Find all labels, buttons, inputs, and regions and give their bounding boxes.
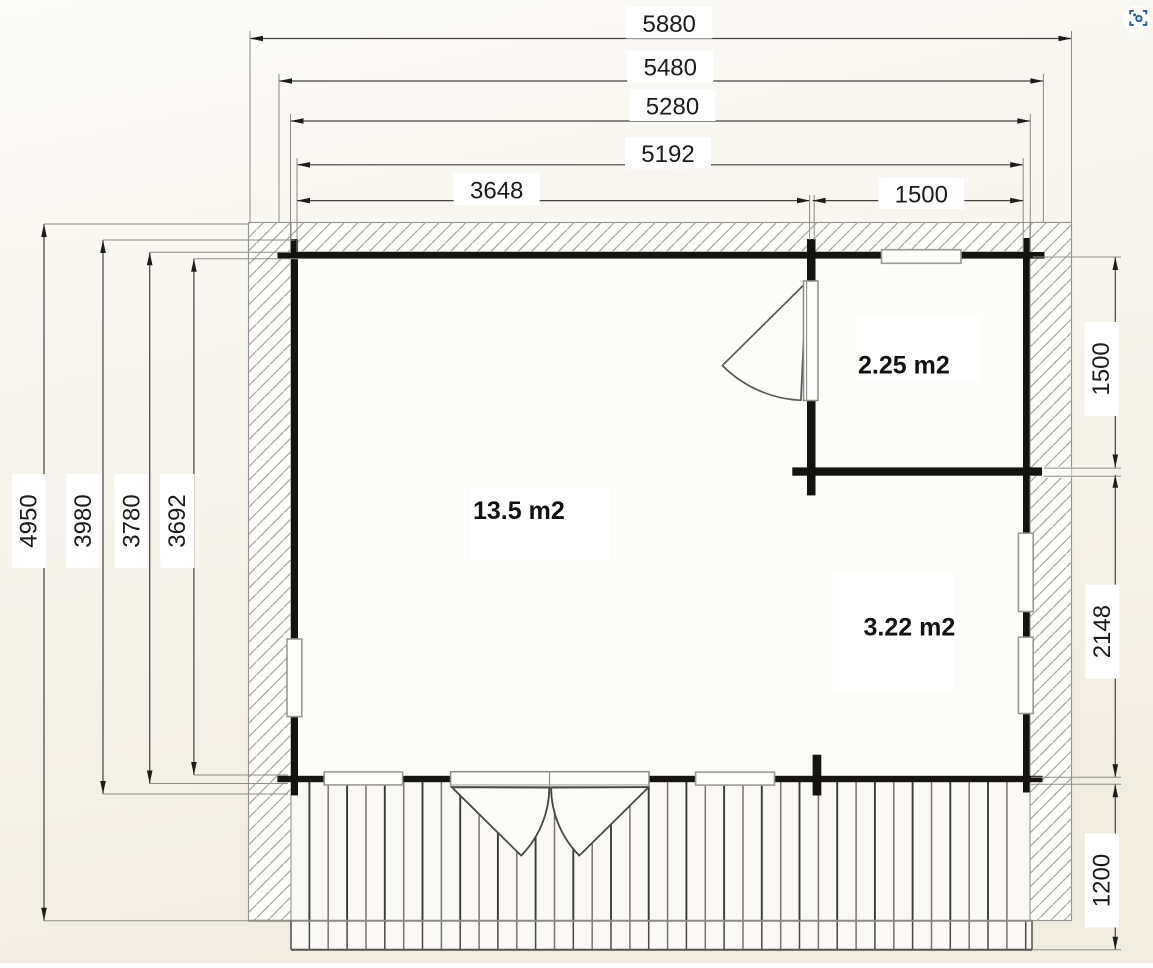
svg-text:4950: 4950 — [15, 494, 42, 547]
svg-text:5192: 5192 — [641, 141, 694, 168]
svg-text:5280: 5280 — [646, 94, 699, 121]
svg-text:1500: 1500 — [895, 182, 948, 209]
svg-text:3980: 3980 — [70, 494, 97, 547]
svg-text:3648: 3648 — [470, 178, 523, 205]
svg-text:13.5 m2: 13.5 m2 — [473, 497, 565, 525]
svg-text:5880: 5880 — [643, 11, 696, 38]
svg-text:2148: 2148 — [1089, 605, 1116, 658]
svg-text:1200: 1200 — [1089, 854, 1116, 907]
svg-text:3780: 3780 — [118, 494, 145, 547]
svg-text:2.25 m2: 2.25 m2 — [858, 352, 950, 380]
svg-text:3.22 m2: 3.22 m2 — [864, 614, 956, 642]
svg-text:5480: 5480 — [644, 55, 697, 82]
svg-text:1500: 1500 — [1088, 342, 1115, 395]
svg-text:3692: 3692 — [164, 494, 191, 547]
